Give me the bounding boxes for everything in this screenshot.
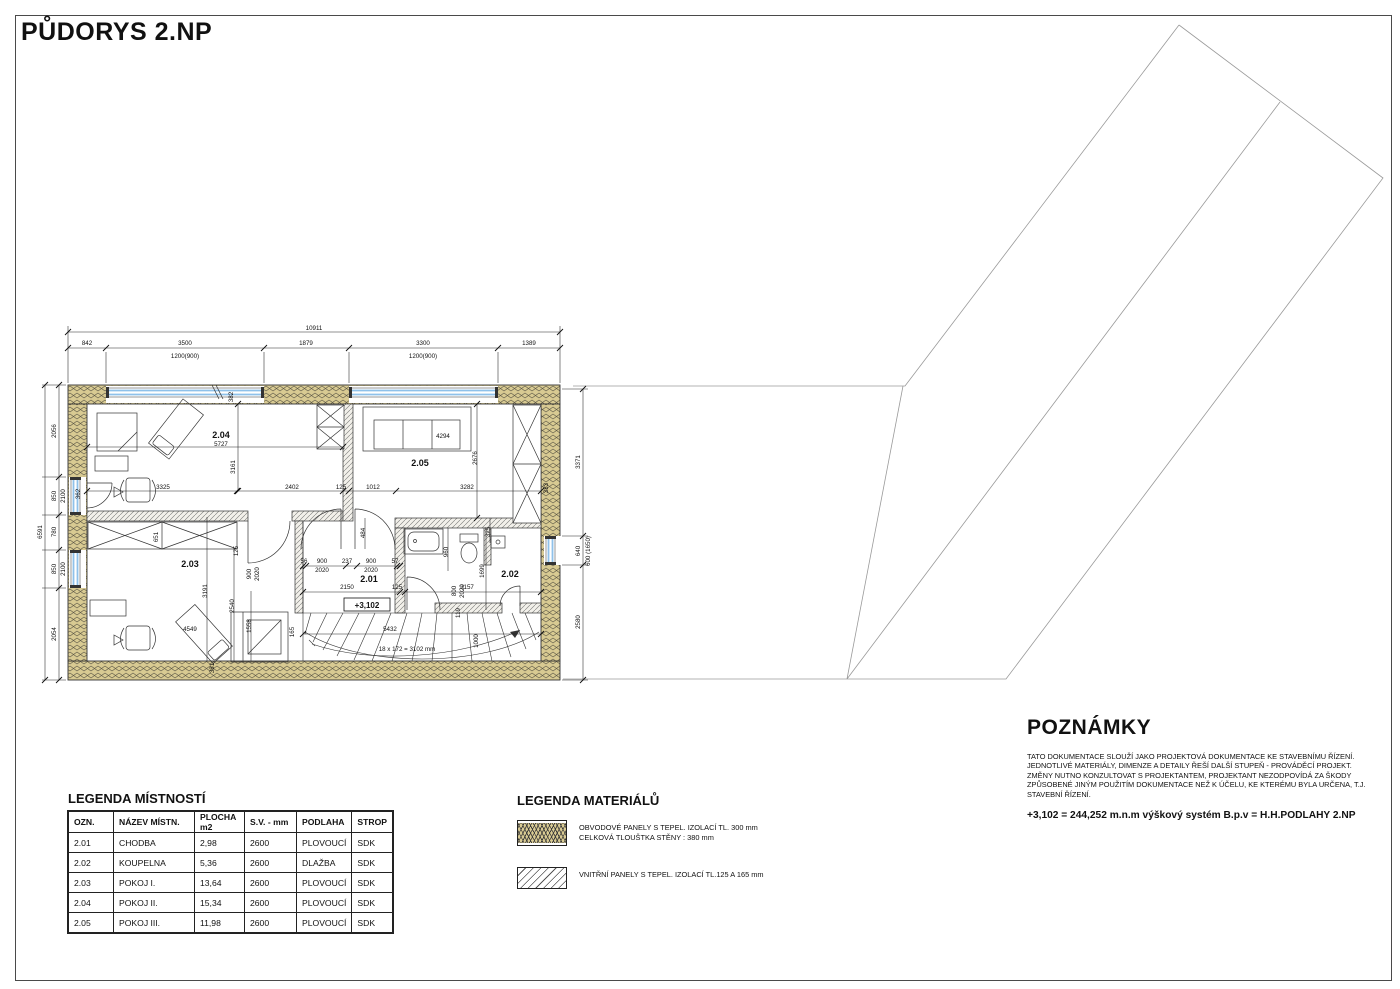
table-cell: KOUPELNA bbox=[114, 853, 195, 873]
window-top-2 bbox=[349, 386, 498, 403]
table-header-cell: OZN. bbox=[69, 812, 114, 833]
closet-room203 bbox=[231, 612, 288, 662]
dim-label: 4549 bbox=[183, 626, 197, 633]
table-header-cell: S.V. - mm bbox=[245, 812, 297, 833]
dim-label: 18 x 172 = 3102 mm bbox=[379, 646, 436, 653]
dim-label: 10911 bbox=[306, 325, 323, 332]
table-header-cell: STROP bbox=[352, 812, 393, 833]
drawing-sheet: PŮDORYS 2.NP bbox=[0, 0, 1400, 989]
dim-label: 2676 bbox=[472, 451, 479, 465]
dimension-ticks bbox=[42, 329, 586, 683]
dim-label: 3371 bbox=[575, 455, 582, 469]
plan-labels: 1091184235001879330013891200(900)1200(90… bbox=[37, 325, 592, 673]
wardrobe-room203 bbox=[88, 522, 237, 549]
desk-room203 bbox=[90, 600, 126, 616]
site-boundary-lines bbox=[563, 25, 1383, 679]
dim-label: 125 bbox=[233, 545, 240, 556]
bathtub bbox=[404, 529, 443, 554]
table-cell: 2600 bbox=[245, 833, 297, 853]
dim-label: 2150 bbox=[340, 584, 354, 591]
dim-label: 165 bbox=[289, 626, 296, 637]
table-cell: 2600 bbox=[245, 853, 297, 873]
dim-label: 381 bbox=[209, 662, 216, 673]
material-label: OBVODOVÉ PANELY S TEPEL. IZOLACÍ TL. 300… bbox=[579, 820, 758, 843]
window-right-1 bbox=[544, 536, 561, 565]
dim-label: 383 bbox=[543, 482, 550, 493]
dim-label: 600 (1650) bbox=[585, 536, 592, 566]
room-label: 2.03 bbox=[181, 559, 199, 569]
dim-label: 5727 bbox=[214, 441, 228, 448]
dim-label: 1389 bbox=[522, 340, 536, 347]
sofa-room205 bbox=[363, 407, 471, 451]
dim-label: 1558 bbox=[246, 619, 253, 633]
interior-walls bbox=[87, 404, 541, 613]
notes-section: POZNÁMKY TATO DOKUMENTACE SLOUŽÍ JAKO PR… bbox=[1027, 716, 1379, 821]
room-label: 2.05 bbox=[411, 458, 429, 468]
dim-label: 2056 bbox=[51, 424, 58, 438]
dim-label: 2020 bbox=[254, 567, 261, 581]
sink bbox=[491, 536, 505, 548]
table-cell: SDK bbox=[352, 893, 393, 913]
dim-label: 57 bbox=[392, 558, 399, 565]
table-cell: 2.02 bbox=[69, 853, 114, 873]
desk-room204 bbox=[95, 413, 137, 471]
table-header-row: OZN.NÁZEV MÍSTN.PLOCHA m2S.V. - mmPODLAH… bbox=[69, 812, 393, 833]
dim-label: 325 bbox=[485, 526, 492, 537]
room-label: +3,102 bbox=[355, 601, 380, 610]
table-cell: 13,64 bbox=[195, 873, 245, 893]
wardrobe-room205 bbox=[513, 405, 541, 523]
dim-label: 2100 bbox=[60, 562, 67, 576]
table-cell: 2600 bbox=[245, 913, 297, 933]
table-cell: 2.05 bbox=[69, 913, 114, 933]
table-cell: 2600 bbox=[245, 893, 297, 913]
table-row: 2.04POKOJ II.15,342600PLOVOUCÍSDK bbox=[69, 893, 393, 913]
materials-legend: LEGENDA MATERIÁLŮ OBVODOVÉ PANELY S TEPE… bbox=[517, 793, 847, 910]
table-header-cell: PODLAHA bbox=[297, 812, 352, 833]
table-cell: PLOVOUCÍ bbox=[297, 873, 352, 893]
table-cell: CHODBA bbox=[114, 833, 195, 853]
dim-label: 900 bbox=[246, 568, 253, 579]
dim-label: 6591 bbox=[37, 525, 44, 539]
table-row: 2.01CHODBA2,982600PLOVOUCÍSDK bbox=[69, 833, 393, 853]
dim-label: 850 bbox=[51, 490, 58, 501]
material-item: OBVODOVÉ PANELY S TEPEL. IZOLACÍ TL. 300… bbox=[517, 820, 847, 846]
room-label: 2.04 bbox=[212, 430, 230, 440]
dimension-lines bbox=[42, 326, 588, 680]
table-cell: POKOJ II. bbox=[114, 893, 195, 913]
dim-label: 2020 bbox=[364, 567, 378, 574]
table-cell: POKOJ III. bbox=[114, 913, 195, 933]
table-header-cell: NÁZEV MÍSTN. bbox=[114, 812, 195, 833]
dim-label: 1000 bbox=[473, 634, 480, 648]
dim-label: 1200(900) bbox=[171, 353, 199, 360]
dim-label: 3300 bbox=[416, 340, 430, 347]
wardrobe-top-center bbox=[317, 405, 344, 449]
window-left-2 bbox=[69, 550, 86, 588]
room-label: 2.01 bbox=[360, 574, 378, 584]
dim-label: 3191 bbox=[202, 584, 209, 598]
table-cell: 2.01 bbox=[69, 833, 114, 853]
table-row: 2.02KOUPELNA5,362600DLAŽBASDK bbox=[69, 853, 393, 873]
room-label: 2.02 bbox=[501, 569, 519, 579]
dim-label: 900 bbox=[366, 558, 377, 565]
table-cell: POKOJ I. bbox=[114, 873, 195, 893]
dim-label: 900 bbox=[317, 558, 328, 565]
dim-label: 3161 bbox=[230, 460, 237, 474]
table-cell: 15,34 bbox=[195, 893, 245, 913]
dim-label: 651 bbox=[153, 531, 160, 542]
materials-legend-title: LEGENDA MATERIÁLŮ bbox=[517, 793, 847, 808]
material-item: VNITŘNÍ PANELY S TEPEL. IZOLACÍ TL.125 A… bbox=[517, 867, 847, 889]
table-row: 2.05POKOJ III.11,982600PLOVOUCÍSDK bbox=[69, 913, 393, 933]
table-cell: SDK bbox=[352, 853, 393, 873]
dim-label: 1200(900) bbox=[409, 353, 437, 360]
table-header-cell: PLOCHA m2 bbox=[195, 812, 245, 833]
table-cell: SDK bbox=[352, 833, 393, 853]
dim-label: 2020 bbox=[315, 567, 329, 574]
staircase bbox=[303, 521, 539, 661]
dim-label: 125 bbox=[336, 484, 347, 491]
material-label: VNITŘNÍ PANELY S TEPEL. IZOLACÍ TL.125 A… bbox=[579, 867, 764, 880]
table-row: 2.03POKOJ I.13,642600PLOVOUCÍSDK bbox=[69, 873, 393, 893]
dim-label: 640 bbox=[575, 545, 582, 556]
table-cell: 2,98 bbox=[195, 833, 245, 853]
dim-label: 2054 bbox=[51, 627, 58, 641]
dim-label: 2540 bbox=[229, 599, 236, 613]
notes-body: TATO DOKUMENTACE SLOUŽÍ JAKO PROJEKTOVÁ … bbox=[1027, 752, 1379, 799]
dim-label: 5432 bbox=[383, 626, 397, 633]
table-cell: PLOVOUCÍ bbox=[297, 913, 352, 933]
table-cell: SDK bbox=[352, 873, 393, 893]
perimeter-panel-swatch bbox=[517, 820, 567, 846]
table-cell: PLOVOUCÍ bbox=[297, 893, 352, 913]
dim-label: 4294 bbox=[436, 433, 450, 440]
door-arc-202 bbox=[500, 586, 520, 606]
table-cell: SDK bbox=[352, 913, 393, 933]
dim-label: 3282 bbox=[460, 484, 474, 491]
room-legend: LEGENDA MÍSTNOSTÍ OZN.NÁZEV MÍSTN.PLOCHA… bbox=[68, 791, 393, 933]
dim-label: 2100 bbox=[60, 489, 67, 503]
dim-label: 484 bbox=[360, 527, 367, 538]
door-arc-room203 bbox=[248, 521, 290, 563]
dim-label: 56 bbox=[301, 558, 308, 565]
chair-room204 bbox=[114, 478, 156, 502]
bed-room204 bbox=[149, 399, 204, 459]
table-cell: 2.03 bbox=[69, 873, 114, 893]
notes-title: POZNÁMKY bbox=[1027, 716, 1379, 740]
dim-label: 119 bbox=[455, 608, 462, 618]
door-arc-left bbox=[87, 483, 112, 508]
dim-label: 3325 bbox=[156, 484, 170, 491]
dim-label: 1012 bbox=[366, 484, 380, 491]
interior-panel-swatch bbox=[517, 867, 567, 889]
table-cell: 5,36 bbox=[195, 853, 245, 873]
table-cell: PLOVOUCÍ bbox=[297, 833, 352, 853]
room-legend-title: LEGENDA MÍSTNOSTÍ bbox=[68, 791, 393, 806]
chair-room203 bbox=[114, 626, 156, 650]
room-legend-table: OZN.NÁZEV MÍSTN.PLOCHA m2S.V. - mmPODLAH… bbox=[68, 811, 393, 933]
notes-height-datum: +3,102 = 244,252 m.n.m výškový systém B.… bbox=[1027, 810, 1379, 821]
dim-label: 3157 bbox=[460, 584, 474, 591]
dim-label: 362 bbox=[75, 488, 82, 499]
dim-label: 1879 bbox=[299, 340, 313, 347]
dim-label: 960 bbox=[443, 546, 450, 557]
dim-label: 2402 bbox=[285, 484, 299, 491]
table-cell: 2600 bbox=[245, 873, 297, 893]
table-cell: 2.04 bbox=[69, 893, 114, 913]
dim-label: 2580 bbox=[575, 615, 582, 629]
dim-label: 1699 bbox=[479, 564, 486, 578]
bed-room203 bbox=[176, 604, 233, 663]
dim-label: 237 bbox=[342, 558, 353, 565]
table-cell: DLAŽBA bbox=[297, 853, 352, 873]
dim-label: 780 bbox=[51, 526, 58, 537]
dim-label: 800 bbox=[451, 585, 458, 596]
dim-label: 382 bbox=[228, 391, 235, 402]
stair-treads bbox=[305, 613, 536, 661]
table-cell: 11,98 bbox=[195, 913, 245, 933]
toilet bbox=[460, 534, 478, 563]
dim-label: 125 bbox=[392, 584, 403, 591]
dim-label: 850 bbox=[51, 563, 58, 574]
dim-label: 3500 bbox=[178, 340, 192, 347]
dim-label: 842 bbox=[82, 340, 93, 347]
